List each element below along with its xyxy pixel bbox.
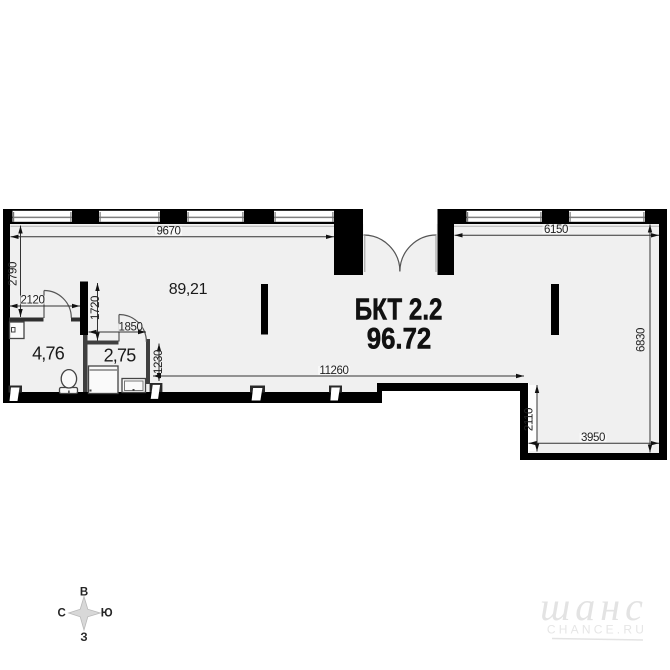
svg-text:1230: 1230 [153,350,165,374]
svg-text:С: С [58,608,66,620]
svg-text:З: З [80,632,87,644]
svg-text:2110: 2110 [524,408,536,431]
svg-text:В: В [80,586,88,598]
svg-text:11260: 11260 [319,365,348,377]
svg-text:6150: 6150 [544,224,568,236]
svg-text:6830: 6830 [636,328,648,352]
svg-text:9670: 9670 [157,226,181,238]
svg-text:2120: 2120 [21,295,45,307]
svg-text:1720: 1720 [90,296,102,320]
svg-text:1850: 1850 [119,322,143,334]
svg-text:2790: 2790 [7,262,19,286]
svg-text:3950: 3950 [581,432,605,444]
svg-text:CHANCE.RU: CHANCE.RU [547,623,647,637]
svg-text:96.72: 96.72 [367,321,432,354]
svg-text:4,76: 4,76 [32,344,65,364]
svg-text:Ю: Ю [101,608,113,620]
svg-text:2,75: 2,75 [104,346,137,366]
svg-text:89,21: 89,21 [169,281,208,298]
